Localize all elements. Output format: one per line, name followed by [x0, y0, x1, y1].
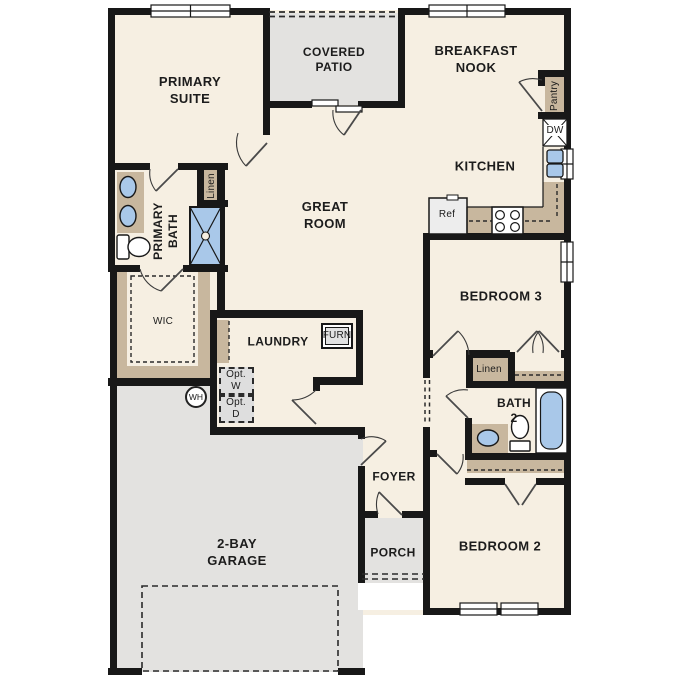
stove — [492, 207, 523, 234]
laundry-label: LAUNDRY — [247, 335, 308, 350]
patio-slider-panel-1 — [312, 100, 338, 106]
wic-label: WIC — [153, 316, 173, 328]
primary-bath-label: PRIMARY BATH — [151, 202, 181, 260]
primary-linen-label: Linen — [206, 173, 218, 198]
kitchen-label: KITCHEN — [455, 158, 516, 175]
bathtub — [536, 388, 567, 453]
bedroom2-label: BEDROOM 2 — [459, 538, 541, 555]
garage-label: 2-BAY GARAGE — [207, 535, 266, 569]
furnace-label: FURN — [323, 330, 352, 342]
shower — [190, 207, 221, 265]
water-heater-label: WH — [189, 392, 203, 402]
dishwasher-label-text: DW — [545, 125, 564, 136]
kitchen-sink — [547, 150, 563, 177]
bath2-label: BATH 2 — [497, 396, 531, 426]
hall-linen-label: Linen — [476, 364, 501, 376]
covered-patio-label: COVERED PATIO — [303, 45, 365, 75]
patio-edge-dashes — [269, 12, 399, 17]
breakfast-nook-label: BREAKFAST NOOK — [434, 42, 517, 76]
opt-washer-label: Opt. W — [226, 369, 246, 393]
primary-suite-label: PRIMARY SUITE — [159, 73, 221, 107]
foyer-label: FOYER — [372, 470, 415, 485]
hall-cased-opening — [425, 380, 430, 425]
refrigerator-label: Ref — [439, 209, 455, 221]
primary-toilet — [117, 235, 150, 259]
porch-edge-dashes — [362, 574, 424, 579]
great-room-label: GREAT ROOM — [302, 198, 349, 232]
dishwasher-label: DW — [545, 125, 564, 137]
porch-label: PORCH — [370, 546, 415, 561]
opt-dryer-label: Opt. D — [226, 397, 246, 421]
bath2-sink — [478, 430, 499, 446]
floor-plan: PRIMARY SUITE COVERED PATIO BREAKFAST NO… — [0, 0, 687, 687]
garage-door-dashes — [142, 586, 338, 671]
pantry-label: Pantry — [549, 81, 561, 111]
primary-vanity-sinks — [120, 177, 136, 227]
patio-slider-panel-2 — [336, 106, 362, 112]
bedroom3-label: BEDROOM 3 — [460, 288, 542, 305]
